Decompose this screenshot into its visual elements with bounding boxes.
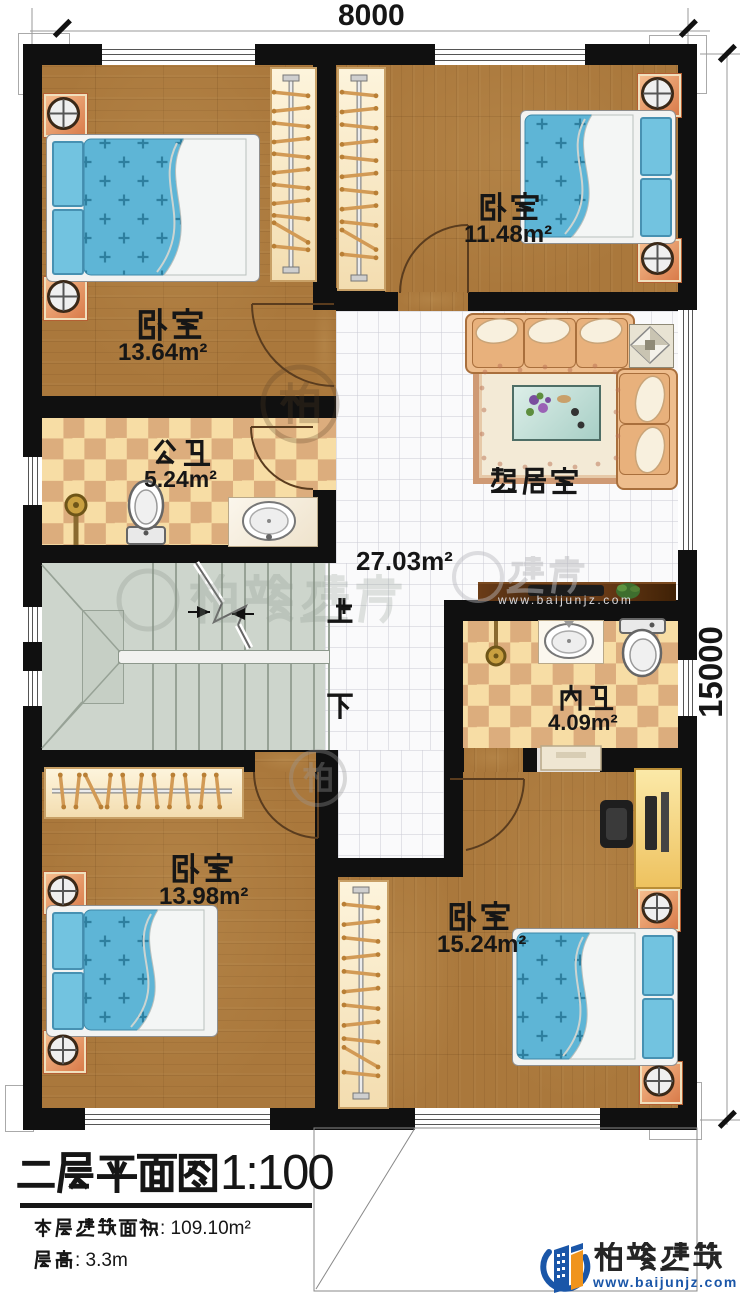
svg-text:: 109.10m²: : 109.10m² bbox=[160, 1218, 251, 1239]
svg-text:13.98m²: 13.98m² bbox=[159, 883, 248, 910]
svg-text:27.03m²: 27.03m² bbox=[356, 546, 453, 576]
svg-text:8000: 8000 bbox=[338, 0, 405, 32]
svg-text:5.24m²: 5.24m² bbox=[144, 466, 217, 492]
svg-text:www.baijunjz.com: www.baijunjz.com bbox=[497, 593, 633, 607]
svg-text:15.24m²: 15.24m² bbox=[437, 931, 526, 958]
svg-text:1:100: 1:100 bbox=[220, 1146, 333, 1200]
svg-text:: 3.3m: : 3.3m bbox=[75, 1250, 128, 1271]
svg-text:11.48m²: 11.48m² bbox=[464, 221, 552, 248]
svg-text:4.09m²: 4.09m² bbox=[548, 710, 618, 735]
svg-text:15000: 15000 bbox=[692, 626, 729, 718]
svg-text:13.64m²: 13.64m² bbox=[118, 339, 207, 366]
